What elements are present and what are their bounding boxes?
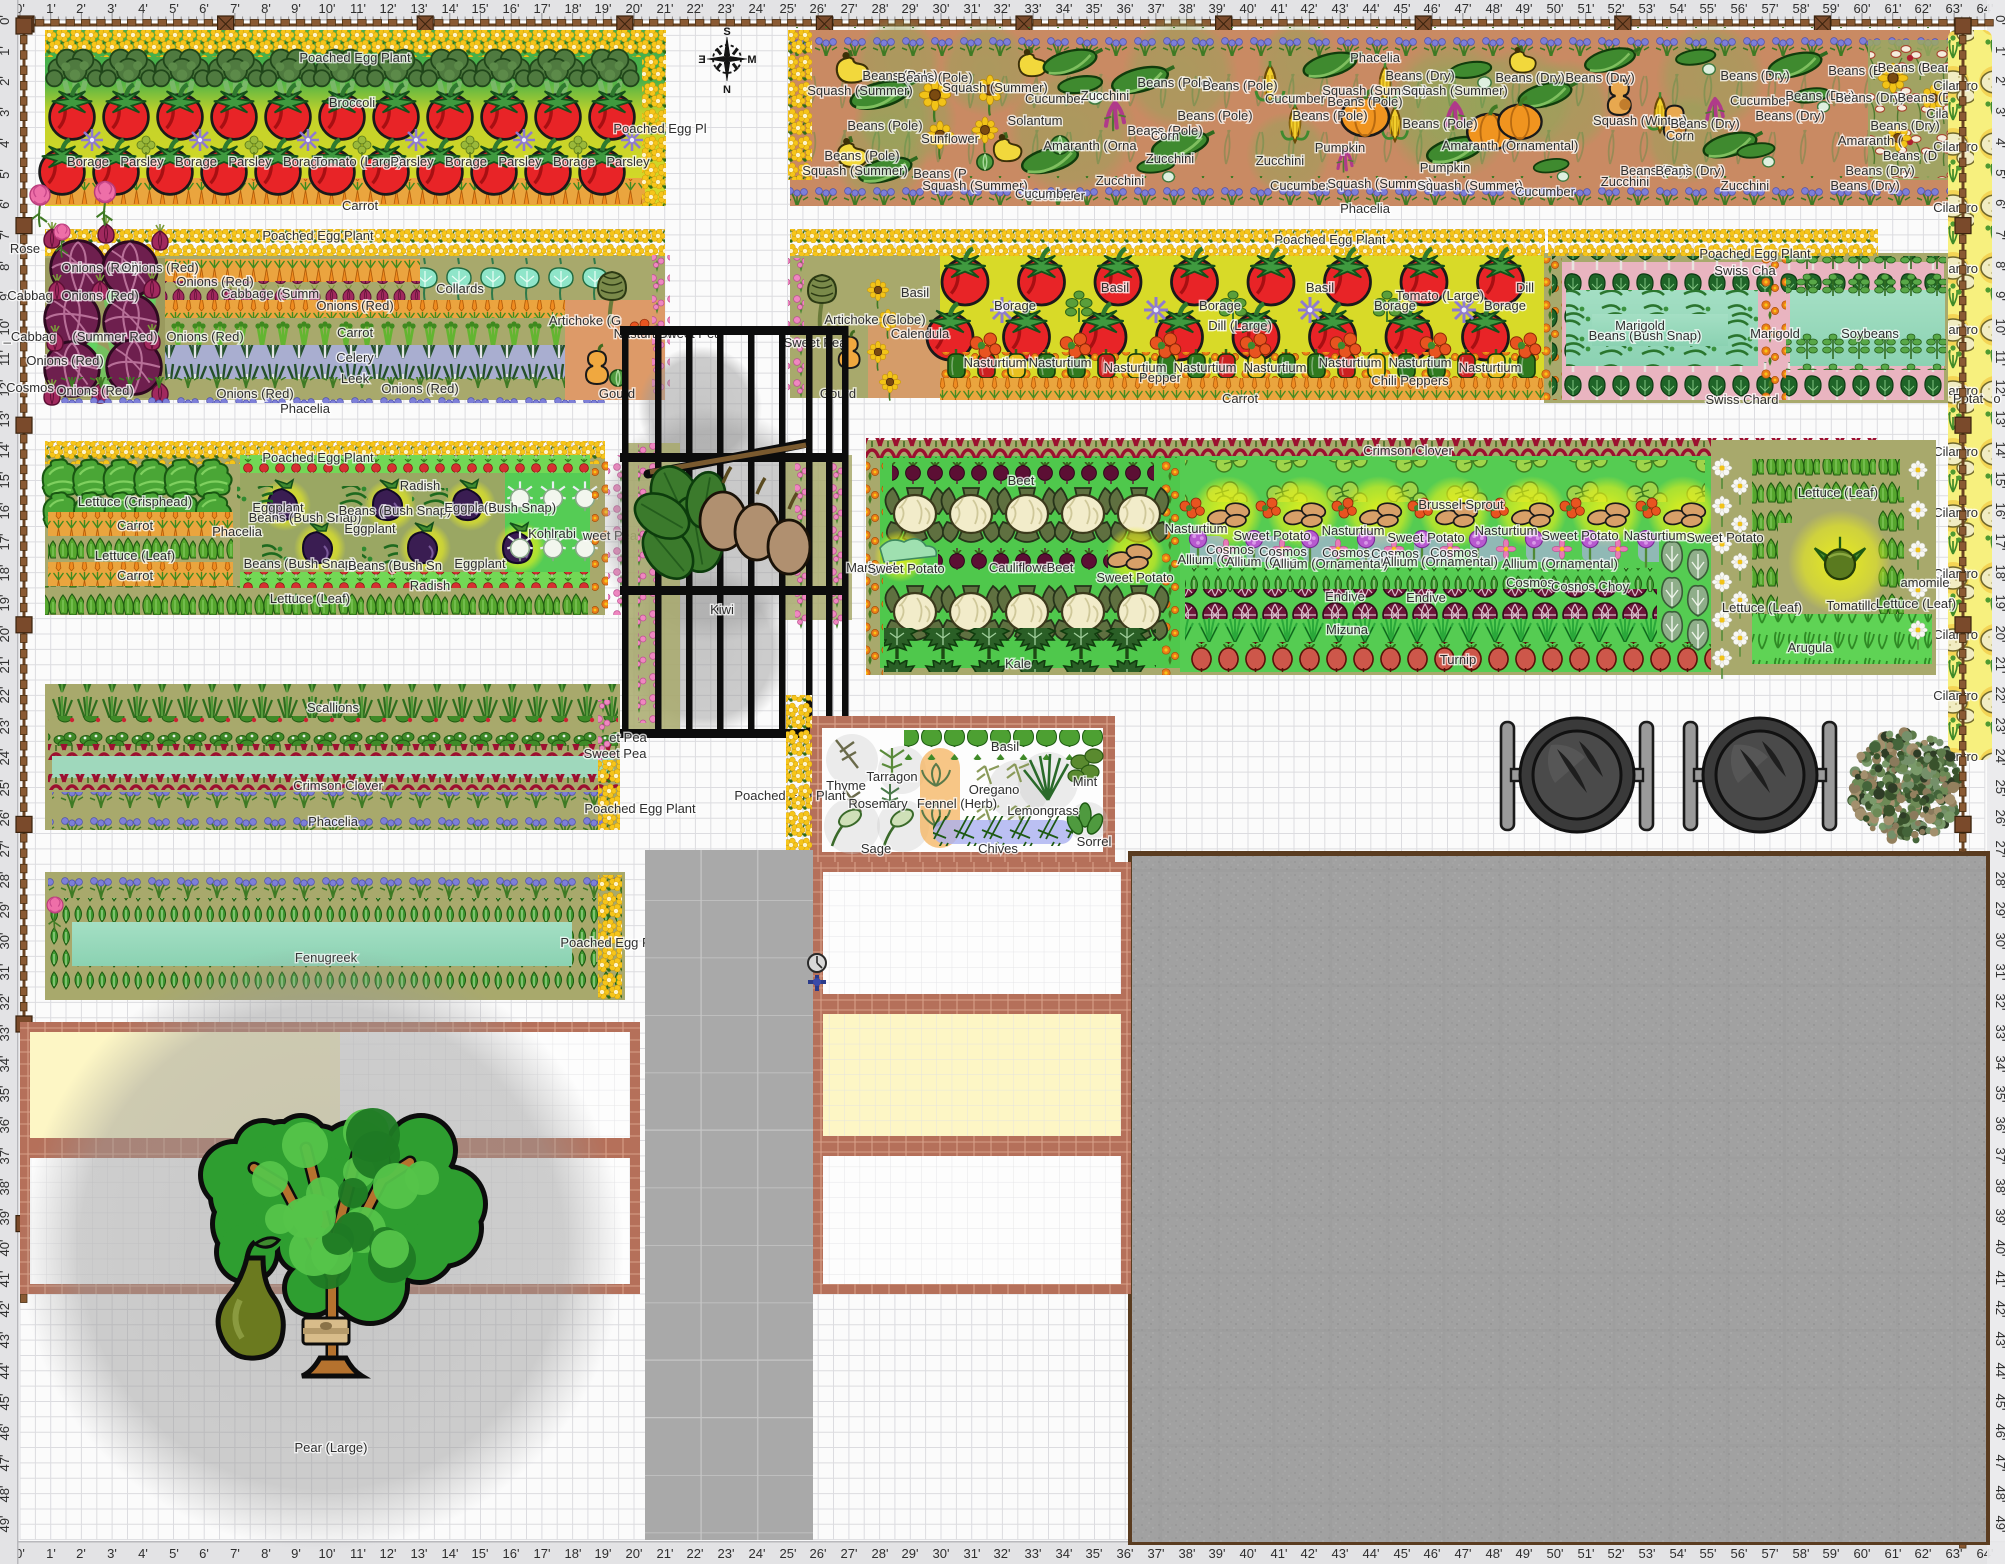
svg-text:61': 61' [1885, 1546, 1902, 1561]
svg-text:47': 47' [0, 1455, 12, 1472]
svg-text:50': 50' [1547, 1546, 1564, 1561]
svg-text:19': 19' [595, 1546, 612, 1561]
svg-text:Nasturtium: Nasturtium [1319, 355, 1382, 370]
svg-text:3': 3' [107, 1546, 117, 1561]
svg-text:Radish: Radish [410, 578, 450, 593]
svg-text:Pumpkin: Pumpkin [1420, 160, 1471, 175]
svg-text:60': 60' [1854, 1546, 1871, 1561]
svg-text:M: M [747, 54, 756, 66]
svg-text:55': 55' [1700, 1546, 1717, 1561]
svg-text:Beans (Dry): Beans (Dry) [1835, 90, 1904, 105]
svg-text:10': 10' [1993, 319, 2005, 336]
svg-text:49': 49' [1516, 1, 1533, 16]
svg-text:20': 20' [1993, 626, 2005, 643]
svg-text:39': 39' [0, 1209, 12, 1226]
svg-text:amomile: amomile [1900, 575, 1949, 590]
svg-text:51': 51' [1578, 1546, 1595, 1561]
svg-text:17': 17' [0, 534, 12, 551]
svg-text:27': 27' [841, 1546, 858, 1561]
svg-text:Onions (Red): Onions (Red) [316, 298, 393, 313]
svg-text:16': 16' [503, 1546, 520, 1561]
svg-text:11': 11' [1993, 350, 2005, 366]
svg-text:Lettuce (Leaf): Lettuce (Leaf) [95, 548, 175, 563]
svg-text:Onions (Red): Onions (Red) [166, 329, 243, 344]
svg-text:0': 0' [0, 15, 12, 25]
svg-text:Beans (: Beans ( [1878, 60, 1923, 75]
svg-text:47': 47' [1993, 1455, 2005, 1472]
svg-text:57': 57' [1762, 1546, 1779, 1561]
svg-text:Cilantro: Cilantro [1933, 444, 1978, 459]
svg-text:Kohlrabi: Kohlrabi [528, 526, 576, 541]
svg-text:Borage: Borage [445, 154, 487, 169]
svg-text:1': 1' [1993, 46, 2005, 56]
svg-text:40': 40' [1240, 1, 1257, 16]
svg-text:39': 39' [1993, 1209, 2005, 1226]
svg-text:Parsley: Parsley [498, 154, 542, 169]
svg-text:Cucumber: Cucumber [1265, 91, 1326, 106]
svg-text:Parsley: Parsley [390, 154, 434, 169]
svg-text:Sweet Potato: Sweet Potato [1686, 530, 1763, 545]
svg-text:5': 5' [169, 1546, 179, 1561]
svg-text:Beans (D: Beans (D [1883, 148, 1937, 163]
svg-text:49': 49' [1993, 1516, 2005, 1533]
svg-text:Endive: Endive [1325, 589, 1365, 604]
svg-text:Lemongrass: Lemongrass [1007, 803, 1079, 818]
svg-text:Tomatillo: Tomatillo [1826, 598, 1877, 613]
svg-text:34': 34' [1993, 1056, 2005, 1073]
svg-text:Rose: Rose [10, 241, 40, 256]
svg-text:15': 15' [472, 1546, 489, 1561]
svg-text:17': 17' [1993, 534, 2005, 551]
svg-text:Zucchini: Zucchini [1256, 153, 1305, 168]
svg-text:36': 36' [0, 1117, 12, 1134]
svg-text:Nasturtium: Nasturtium [1475, 523, 1538, 538]
svg-text:29': 29' [1993, 902, 2005, 919]
svg-text:49': 49' [1516, 1546, 1533, 1561]
svg-text:21': 21' [657, 1546, 674, 1561]
svg-text:35': 35' [1086, 1, 1103, 16]
svg-text:42': 42' [1301, 1546, 1318, 1561]
svg-text:Beans (Dry): Beans (Dry) [1755, 108, 1824, 123]
svg-text:62': 62' [1915, 1546, 1932, 1561]
svg-text:59': 59' [1823, 1, 1840, 16]
svg-text:18': 18' [565, 1, 582, 16]
svg-text:15': 15' [472, 1, 489, 16]
svg-text:Carrot: Carrot [117, 518, 154, 533]
svg-text:6': 6' [1993, 199, 2005, 209]
svg-text:Nasturtium: Nasturtium [1174, 360, 1237, 375]
svg-text:Pumpkin: Pumpkin [1315, 140, 1366, 155]
svg-text:Squash (Summer): Squash (Summer) [802, 163, 907, 178]
svg-text:53': 53' [1639, 1546, 1656, 1561]
svg-text:34': 34' [1056, 1546, 1073, 1561]
svg-text:0': 0' [1993, 15, 2005, 25]
svg-text:13': 13' [411, 1546, 428, 1561]
svg-text:Cosmos: Cosmos [1506, 575, 1554, 590]
svg-text:61': 61' [1885, 1, 1902, 16]
svg-text:40': 40' [0, 1240, 12, 1257]
svg-text:12': 12' [380, 1, 397, 16]
svg-text:40': 40' [1993, 1240, 2005, 1257]
svg-text:39': 39' [1209, 1, 1226, 16]
svg-text:Mizuna: Mizuna [1326, 622, 1369, 637]
svg-text:35': 35' [0, 1086, 12, 1103]
svg-text:12': 12' [380, 1546, 397, 1561]
svg-text:37': 37' [1148, 1, 1165, 16]
svg-text:40': 40' [1240, 1546, 1257, 1561]
svg-text:31': 31' [0, 964, 12, 981]
svg-text:Kale: Kale [1005, 656, 1031, 671]
svg-text:3': 3' [0, 107, 12, 117]
svg-text:33': 33' [1993, 1025, 2005, 1042]
svg-text:18': 18' [565, 1546, 582, 1561]
svg-text:46': 46' [1424, 1, 1441, 16]
svg-text:5': 5' [169, 1, 179, 16]
svg-text:8': 8' [0, 261, 12, 271]
svg-text:Nasturtium: Nasturtium [1029, 355, 1092, 370]
svg-text:Carrot: Carrot [1222, 391, 1259, 406]
svg-text:24': 24' [0, 749, 12, 766]
svg-text:3': 3' [1993, 107, 2005, 117]
svg-text:60': 60' [1854, 1, 1871, 16]
svg-text:Dill (Large): Dill (Large) [1208, 318, 1272, 333]
svg-text:Nasturtium: Nasturtium [1459, 360, 1522, 375]
svg-text:Brussel Sprout: Brussel Sprout [1418, 497, 1504, 512]
svg-text:32': 32' [1993, 994, 2005, 1011]
svg-text:Celery: Celery [336, 350, 374, 365]
svg-text:28': 28' [872, 1546, 889, 1561]
svg-text:1': 1' [46, 1546, 56, 1561]
svg-text:30': 30' [933, 1, 950, 16]
svg-text:11': 11' [0, 350, 12, 366]
svg-text:8': 8' [1993, 261, 2005, 271]
svg-text:Rosemary: Rosemary [848, 796, 908, 811]
svg-text:Basil: Basil [1101, 280, 1129, 295]
svg-text:13': 13' [411, 1, 428, 16]
svg-text:Cucumber: Cucumber [1515, 184, 1576, 199]
svg-text:Mint: Mint [1073, 774, 1098, 789]
svg-text:29': 29' [0, 902, 12, 919]
svg-text:S: S [723, 26, 730, 38]
svg-text:50': 50' [1547, 1, 1564, 16]
svg-text:7': 7' [230, 1, 240, 16]
svg-text:17': 17' [534, 1, 551, 16]
svg-text:_Cabbag: _Cabbag [3, 329, 57, 344]
svg-text:Beans (Dry): Beans (Dry) [1830, 178, 1899, 193]
svg-text:Sweet Potato: Sweet Potato [867, 561, 944, 576]
svg-text:Beans (Pole): Beans (Pole) [824, 148, 899, 163]
svg-text:Leek: Leek [341, 371, 370, 386]
svg-text:Carrot: Carrot [337, 325, 374, 340]
svg-text:7': 7' [230, 1546, 240, 1561]
svg-text:45': 45' [1394, 1546, 1411, 1561]
svg-text:58': 58' [1793, 1, 1810, 16]
svg-text:Beans (Bush Sn: Beans (Bush Sn [348, 558, 442, 573]
svg-text:Swiss Cha: Swiss Cha [1714, 263, 1776, 278]
svg-text:Lettuce (Crisphead): Lettuce (Crisphead) [78, 494, 192, 509]
svg-text:48': 48' [1993, 1486, 2005, 1503]
svg-text:Kiwi: Kiwi [710, 602, 734, 617]
svg-text:43': 43' [1332, 1, 1349, 16]
svg-text:27': 27' [0, 841, 12, 858]
svg-text:20': 20' [0, 626, 12, 643]
svg-text:Sweet Potato: Sweet Potato [1541, 528, 1618, 543]
svg-text:3': 3' [107, 1, 117, 16]
svg-text:30': 30' [0, 933, 12, 950]
svg-text:56': 56' [1731, 1, 1748, 16]
svg-text:Poached Egg Pl: Poached Egg Pl [613, 121, 706, 136]
svg-text:Cucumber: Cucumber [1270, 178, 1331, 193]
svg-text:Ǝ: Ǝ [698, 54, 705, 66]
svg-text:Amaranth (: Amaranth ( [1838, 133, 1903, 148]
svg-text:21': 21' [1993, 657, 2005, 674]
svg-text:Fennel (Herb): Fennel (Herb) [917, 796, 997, 811]
svg-text:54': 54' [1670, 1, 1687, 16]
svg-text:Nasturtium: Nasturtium [1165, 521, 1228, 536]
svg-text:16': 16' [0, 503, 12, 520]
svg-text:41': 41' [1993, 1271, 2005, 1288]
svg-text:Beans (Bush Snap): Beans (Bush Snap) [244, 556, 357, 571]
svg-text:25': 25' [1993, 780, 2005, 797]
svg-text:Marigold: Marigold [1615, 318, 1665, 333]
svg-text:Tomato (Large): Tomato (Large) [314, 154, 402, 169]
svg-text:24': 24' [749, 1, 766, 16]
svg-text:34': 34' [0, 1056, 12, 1073]
svg-text:Nasturtium: Nasturtium [1322, 523, 1385, 538]
svg-text:Sweet Pea: Sweet Pea [784, 335, 848, 350]
svg-text:9': 9' [1993, 291, 2005, 301]
svg-text:17': 17' [534, 1546, 551, 1561]
svg-text:42': 42' [1301, 1, 1318, 16]
svg-text:Phacelia: Phacelia [1340, 201, 1391, 216]
svg-text:20': 20' [626, 1546, 643, 1561]
svg-text:42': 42' [1993, 1301, 2005, 1318]
svg-text:14': 14' [1993, 442, 2005, 459]
svg-text:Squash (Summer): Squash (Summer) [1402, 83, 1507, 98]
svg-text:Beans (Pole): Beans (Pole) [1137, 75, 1212, 90]
svg-text:Basil: Basil [991, 739, 1019, 754]
svg-text:Beet: Beet [1047, 560, 1074, 575]
svg-text:33': 33' [1025, 1, 1042, 16]
svg-text:Parsley: Parsley [606, 154, 650, 169]
svg-text:38': 38' [0, 1179, 12, 1196]
svg-text:Beans (Pole): Beans (Pole) [1327, 94, 1402, 109]
svg-text:25': 25' [780, 1, 797, 16]
svg-text:Beans (Dry): Beans (Dry) [1655, 163, 1724, 178]
svg-text:1': 1' [0, 46, 12, 56]
svg-text:52': 52' [1608, 1, 1625, 16]
svg-text:37': 37' [1993, 1148, 2005, 1165]
svg-text:19': 19' [0, 595, 12, 612]
svg-text:32': 32' [994, 1546, 1011, 1561]
svg-text:Squash (Summer): Squash (Summer) [1417, 178, 1522, 193]
svg-text:Cabbag: Cabbag [7, 288, 53, 303]
svg-text:6': 6' [199, 1546, 209, 1561]
svg-text:Cilantro: Cilantro [1933, 139, 1978, 154]
svg-text:49': 49' [0, 1516, 12, 1533]
svg-text:Sorrel: Sorrel [1077, 834, 1112, 849]
svg-text:6': 6' [0, 199, 12, 209]
svg-text:Allium (Ornamental): Allium (Ornamental) [1382, 554, 1498, 569]
svg-text:62': 62' [1915, 1, 1932, 16]
svg-text:Beans (B: Beans (B [1828, 63, 1881, 78]
svg-text:o: o [1993, 391, 2000, 406]
svg-text:45': 45' [0, 1394, 12, 1411]
svg-text:Pepper: Pepper [1139, 370, 1182, 385]
svg-text:2': 2' [76, 1, 86, 16]
svg-text:2': 2' [0, 76, 12, 86]
svg-text:Cilantro: Cilantro [1933, 200, 1978, 215]
svg-text:43': 43' [1332, 1546, 1349, 1561]
svg-text:(Bush Snap): (Bush Snap) [484, 500, 556, 515]
svg-text:41': 41' [1271, 1546, 1288, 1561]
svg-text:Cilantro: Cilantro [1933, 688, 1978, 703]
svg-text:Parsley: Parsley [120, 154, 164, 169]
svg-text:8': 8' [261, 1546, 271, 1561]
svg-text:53': 53' [1639, 1, 1656, 16]
svg-text:Gourd: Gourd [599, 386, 635, 401]
svg-text:21': 21' [657, 1, 674, 16]
svg-text:45': 45' [1993, 1394, 2005, 1411]
svg-text:Poached Egg Plant: Poached Egg Plant [262, 450, 374, 465]
svg-text:6': 6' [199, 1, 209, 16]
svg-text:63': 63' [1946, 1, 1963, 16]
svg-text:46': 46' [1993, 1424, 2005, 1441]
svg-text:Basil: Basil [901, 285, 929, 300]
svg-text:Borage: Borage [67, 154, 109, 169]
svg-text:25': 25' [780, 1546, 797, 1561]
svg-text:Allium (Ornamental): Allium (Ornamental) [1502, 556, 1618, 571]
svg-text:Cucumber: Cucumber [1015, 186, 1076, 201]
svg-text:58': 58' [1793, 1546, 1810, 1561]
svg-text:44': 44' [1363, 1, 1380, 16]
svg-text:Onions (Red): Onions (Red) [216, 386, 293, 401]
svg-text:Lettuce (Leaf): Lettuce (Leaf) [270, 591, 350, 606]
svg-text:Artichoke (G: Artichoke (G [549, 313, 621, 328]
svg-text:Marigold: Marigold [1750, 326, 1800, 341]
svg-text:Amaranth (Ornamental): Amaranth (Ornamental) [1442, 138, 1579, 153]
svg-text:Borage: Borage [553, 154, 595, 169]
svg-text:36': 36' [1993, 1117, 2005, 1134]
svg-text:27': 27' [1993, 841, 2005, 858]
svg-text:Phacelia: Phacelia [308, 814, 359, 829]
svg-text:32': 32' [994, 1, 1011, 16]
svg-text:14': 14' [442, 1546, 459, 1561]
svg-text:Onions (Red): Onions (Red) [61, 288, 138, 303]
svg-text:15': 15' [0, 472, 12, 489]
svg-text:29': 29' [902, 1, 919, 16]
svg-text:22': 22' [0, 687, 12, 704]
svg-text:Cilantro: Cilantro [1933, 505, 1978, 520]
svg-text:42': 42' [0, 1301, 12, 1318]
svg-text:Broccoli: Broccoli [329, 95, 375, 110]
svg-text:38': 38' [1993, 1179, 2005, 1196]
svg-text:Parsley: Parsley [228, 154, 272, 169]
svg-text:Beans (Pole): Beans (Pole) [847, 118, 922, 133]
svg-text:59': 59' [1823, 1546, 1840, 1561]
svg-text:Cilantro: Cilantro [1933, 78, 1978, 93]
svg-text:Carrot: Carrot [117, 568, 154, 583]
svg-text:Beans (Dry): Beans (Dry) [1670, 116, 1739, 131]
svg-text:N: N [723, 84, 731, 96]
svg-text:18': 18' [1993, 565, 2005, 582]
svg-text:Crimson Clover: Crimson Clover [293, 778, 383, 793]
svg-text:30': 30' [933, 1546, 950, 1561]
svg-text:13': 13' [1993, 411, 2005, 428]
svg-text:Poached Egg Plant: Poached Egg Plant [1274, 232, 1386, 247]
svg-text:19': 19' [1993, 595, 2005, 612]
svg-text:Phacelia: Phacelia [1350, 50, 1401, 65]
svg-text:Collards: Collards [436, 281, 484, 296]
svg-text:33': 33' [0, 1025, 12, 1042]
svg-text:15': 15' [1993, 472, 2005, 489]
svg-text:Sweet Potato: Sweet Potato [1233, 528, 1310, 543]
svg-text:23': 23' [0, 718, 12, 735]
svg-text:Cucumber: Cucumber [1730, 93, 1791, 108]
svg-text:Radish: Radish [400, 478, 440, 493]
svg-text:Calendula: Calendula [891, 326, 950, 341]
svg-text:28': 28' [872, 1, 889, 16]
svg-text:14': 14' [442, 1, 459, 16]
svg-text:24': 24' [1993, 749, 2005, 766]
svg-text:Potat: Potat [1953, 391, 1984, 406]
svg-text:Borage: Borage [1484, 298, 1526, 313]
svg-text:Nasturtium: Nasturtium [1624, 528, 1687, 543]
svg-text:Cabbage (Summ: Cabbage (Summ [221, 286, 319, 301]
svg-text:Phacelia: Phacelia [280, 401, 331, 416]
svg-text:44': 44' [1363, 1546, 1380, 1561]
svg-text:43': 43' [1993, 1332, 2005, 1349]
svg-text:Beans (Dry): Beans (Dry) [1495, 70, 1564, 85]
svg-text:Borage: Borage [1199, 298, 1241, 313]
svg-text:1': 1' [46, 1, 56, 16]
svg-text:Poached Egg Plant: Poached Egg Plant [1699, 246, 1811, 261]
svg-text:Amaranth (Orna: Amaranth (Orna [1043, 138, 1137, 153]
svg-text:46': 46' [1424, 1546, 1441, 1561]
svg-text:37': 37' [0, 1148, 12, 1165]
svg-text:47': 47' [1455, 1, 1472, 16]
svg-text:39': 39' [1209, 1546, 1226, 1561]
svg-text:Artichoke (Globe): Artichoke (Globe) [824, 312, 925, 327]
svg-text:Nasturtium: Nasturtium [1244, 360, 1307, 375]
svg-text:21': 21' [0, 657, 12, 674]
svg-text:Oregano: Oregano [969, 782, 1020, 797]
svg-text:14': 14' [0, 442, 12, 459]
svg-text:Phacelia: Phacelia [212, 524, 263, 539]
svg-text:et Pea: et Pea [609, 730, 647, 745]
svg-text:Swiss Chard: Swiss Chard [1706, 392, 1779, 407]
svg-text:34': 34' [1056, 1, 1073, 16]
svg-text:25': 25' [0, 780, 12, 797]
svg-text:Onions (Red): Onions (Red) [56, 383, 133, 398]
svg-text:Poached Egg Plant: Poached Egg Plant [262, 228, 374, 243]
svg-text:Tarragon: Tarragon [866, 769, 917, 784]
svg-text:41': 41' [1271, 1, 1288, 16]
svg-text:44': 44' [1993, 1363, 2005, 1380]
svg-text:23': 23' [718, 1, 735, 16]
svg-text:Sweet Pea: Sweet Pea [584, 746, 648, 761]
svg-text:Lettuce (Leaf): Lettuce (Leaf) [1876, 596, 1956, 611]
svg-text:19': 19' [595, 1, 612, 16]
svg-text:Cauliflower: Cauliflower [989, 560, 1054, 575]
svg-text:23': 23' [1993, 718, 2005, 735]
svg-text:4': 4' [1993, 138, 2005, 148]
svg-text:11': 11' [350, 1, 366, 16]
svg-text:32': 32' [0, 994, 12, 1011]
svg-text:Sage: Sage [861, 841, 891, 856]
svg-text:29': 29' [902, 1546, 919, 1561]
svg-text:Beans (Dry): Beans (Dry) [1720, 68, 1789, 83]
